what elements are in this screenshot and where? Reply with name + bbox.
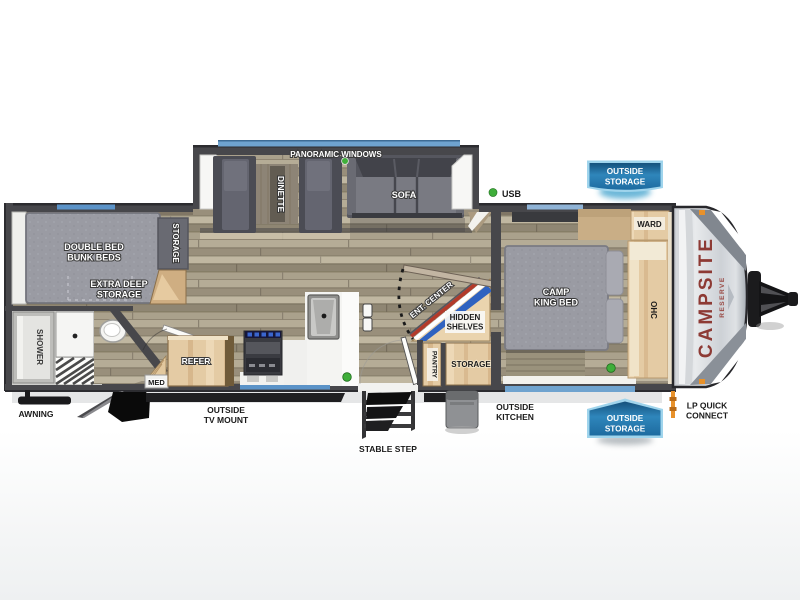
svg-text:DINETTE: DINETTE [276,176,286,213]
svg-text:OUTSIDE: OUTSIDE [496,402,534,412]
svg-text:KING BED: KING BED [534,298,579,308]
svg-text:PANTRY: PANTRY [431,351,438,379]
svg-text:SOFA: SOFA [392,190,417,200]
svg-text:SHOWER: SHOWER [35,329,44,365]
svg-text:LP QUICK: LP QUICK [687,401,728,411]
svg-text:RESERVE: RESERVE [719,276,726,317]
svg-text:SHELVES: SHELVES [447,323,484,332]
svg-text:CAMP: CAMP [543,287,570,297]
svg-text:TV MOUNT: TV MOUNT [204,415,249,425]
svg-text:BUNK BEDS: BUNK BEDS [67,253,121,263]
svg-text:KITCHEN: KITCHEN [496,412,534,422]
svg-text:STORAGE: STORAGE [605,178,646,187]
svg-text:MED: MED [148,378,165,387]
svg-text:OUTSIDE: OUTSIDE [607,414,644,423]
svg-text:HIDDEN: HIDDEN [450,313,481,322]
svg-text:USB: USB [502,189,522,199]
svg-text:STORAGE: STORAGE [97,290,141,300]
svg-text:STABLE STEP: STABLE STEP [359,444,417,454]
svg-text:OUTSIDE: OUTSIDE [607,167,644,176]
svg-text:REFER: REFER [182,356,211,366]
svg-text:STORAGE: STORAGE [451,360,491,369]
svg-text:STORAGE: STORAGE [171,223,180,263]
svg-text:CONNECT: CONNECT [686,411,729,421]
svg-text:WARD: WARD [637,220,662,229]
svg-text:AWNING: AWNING [19,409,54,419]
svg-text:STORAGE: STORAGE [605,425,646,434]
svg-text:DOUBLE BED: DOUBLE BED [64,242,124,252]
svg-text:PANORAMIC WINDOWS: PANORAMIC WINDOWS [290,150,382,159]
svg-text:EXTRA DEEP: EXTRA DEEP [90,279,147,289]
svg-text:CAMPSITE: CAMPSITE [696,236,717,358]
svg-text:OHC: OHC [649,301,658,319]
svg-text:OUTSIDE: OUTSIDE [207,405,245,415]
